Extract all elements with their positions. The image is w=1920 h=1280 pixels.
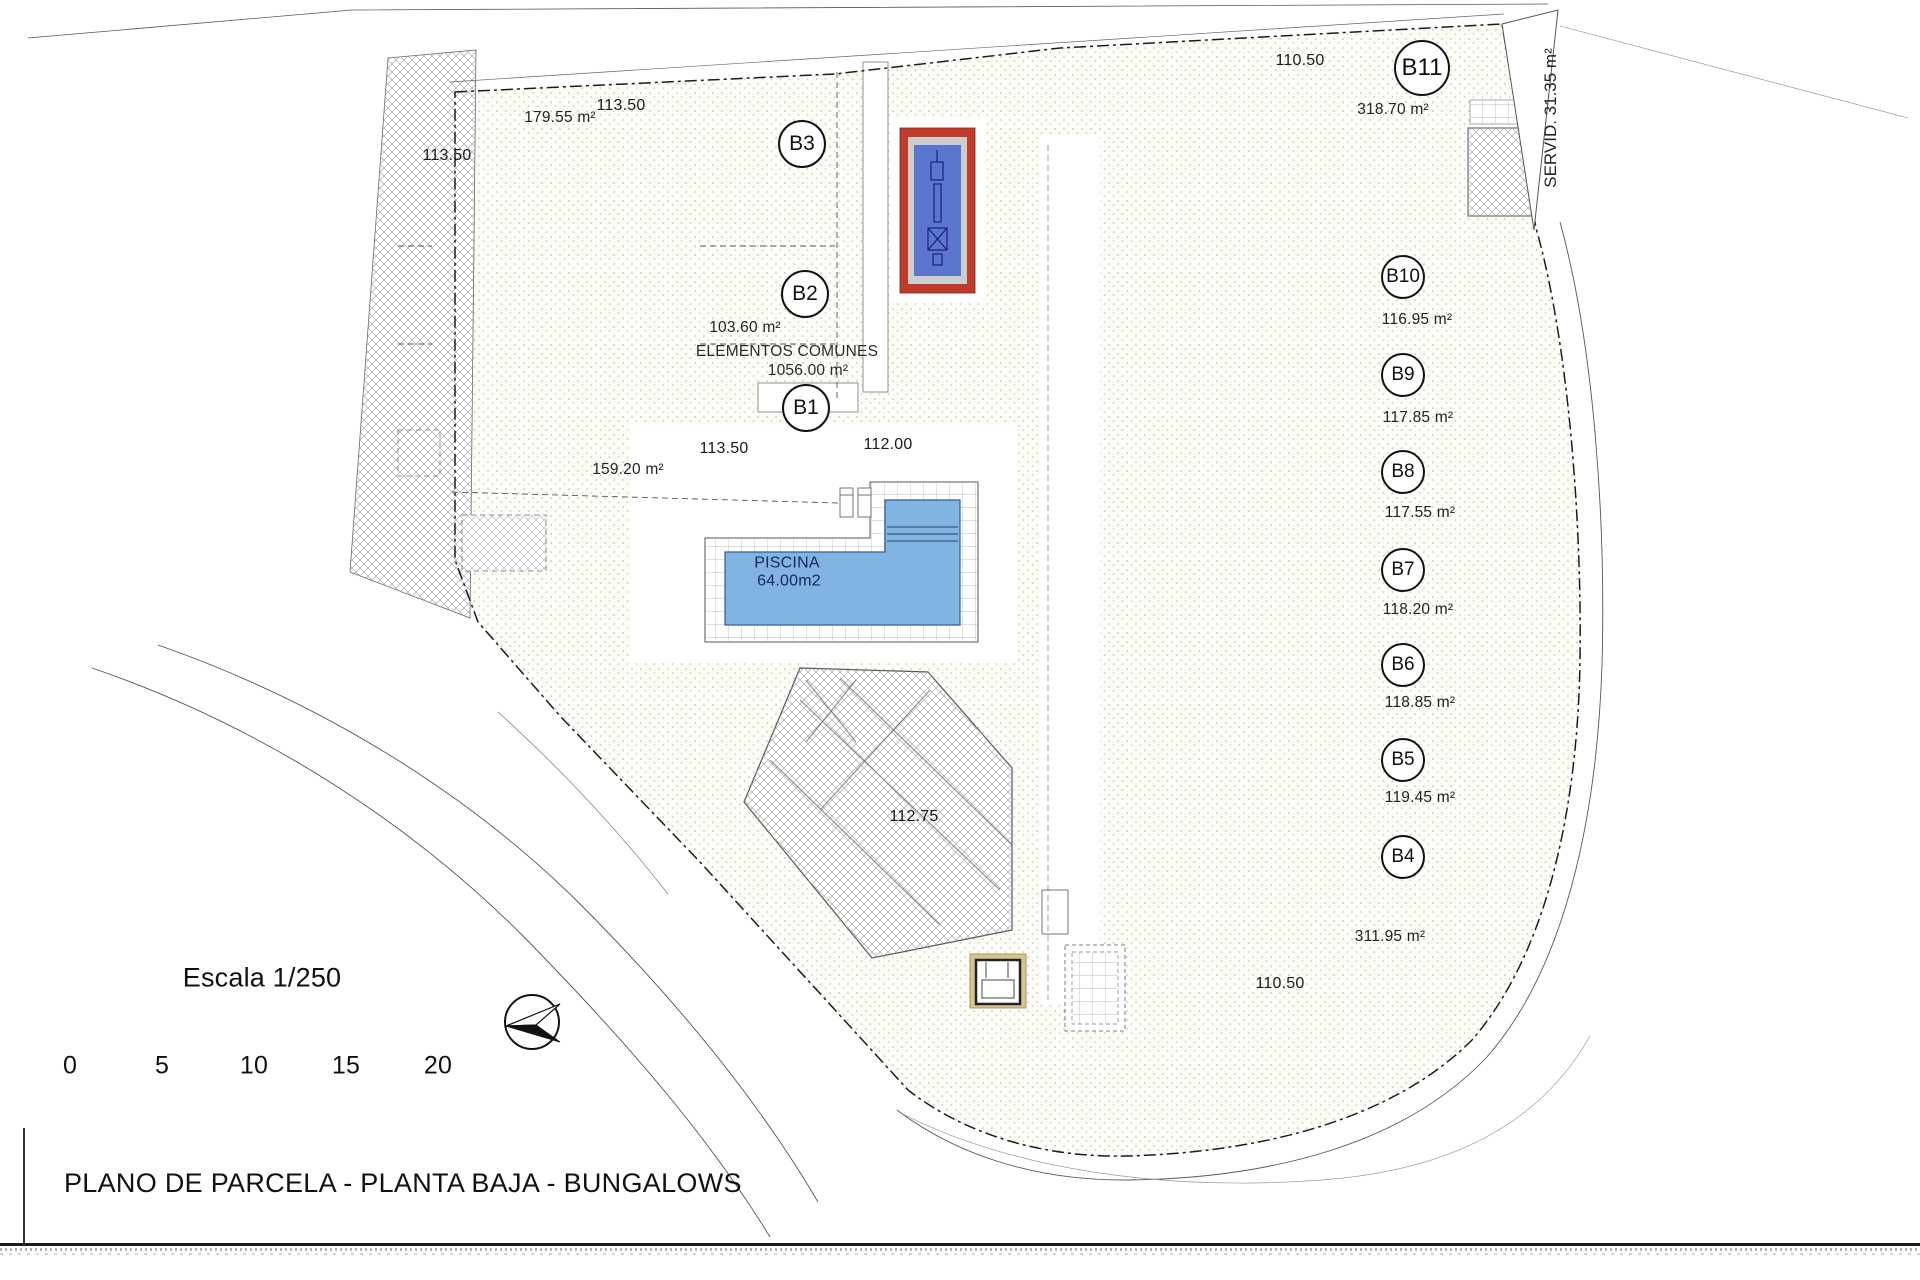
area-b7: 118.20 m²	[1383, 601, 1453, 619]
unit-label-b10: B10	[1381, 255, 1425, 299]
unit-label-b9: B9	[1381, 353, 1425, 397]
cropped-text-strip	[0, 1247, 1920, 1259]
unit-label-b7: B7	[1381, 548, 1425, 592]
area-b3: 179.55 m²	[524, 109, 596, 127]
area-b2: 103.60 m²	[709, 319, 781, 337]
level-110-50-bottom: 110.50	[1256, 975, 1305, 993]
unit-label-b2: B2	[781, 270, 829, 318]
level-112-00: 112.00	[864, 436, 913, 454]
unit-label-b1: B1	[782, 384, 830, 432]
small-stair	[1042, 890, 1068, 934]
area-b8: 117.55 m²	[1385, 504, 1455, 522]
area-b5: 119.45 m²	[1385, 789, 1455, 807]
sheet-frame-bottom	[0, 1243, 1920, 1246]
unit-label-b6: B6	[1381, 643, 1425, 687]
level-113-50-bottom: 113.50	[700, 440, 749, 458]
area-b4: 311.95 m²	[1355, 928, 1425, 946]
pool-area: 64.00m2	[757, 571, 821, 590]
area-b6: 118.85 m²	[1385, 694, 1455, 712]
scale-tick-20: 20	[424, 1052, 452, 1081]
scale-tick-10: 10	[240, 1052, 268, 1081]
area-b9: 117.85 m²	[1383, 409, 1453, 427]
unit-label-b8: B8	[1381, 450, 1425, 494]
area-b11: 318.70 m²	[1357, 101, 1429, 119]
common-elements-area: 1056.00 m²	[768, 362, 848, 380]
sheet-title: PLANO DE PARCELA - PLANTA BAJA - BUNGALO…	[64, 1168, 742, 1199]
unit-label-b4: B4	[1381, 835, 1425, 879]
scale-tick-15: 15	[332, 1052, 360, 1081]
level-113-50-west: 113.50	[423, 147, 472, 165]
petanque-court	[900, 128, 975, 293]
scale-tick-5: 5	[155, 1052, 169, 1081]
pool-label: PISCINA	[754, 553, 819, 572]
level-110-50-top: 110.50	[1276, 52, 1325, 70]
unit-label-b11: B11	[1394, 40, 1450, 96]
unit-label-b5: B5	[1381, 738, 1425, 782]
scale-title: Escala 1/250	[183, 963, 342, 994]
sheet-frame-left	[23, 1128, 25, 1244]
plan-sheet: B1 B2 B3 B4 B5 B6 B7 B8 B9 B10 B11 159.2…	[0, 0, 1920, 1280]
north-arrow-icon	[505, 995, 560, 1049]
scale-tick-0: 0	[63, 1052, 77, 1081]
servitude-label: SERVID. 31.35 m²	[1541, 48, 1561, 188]
area-b1: 159.20 m²	[592, 461, 664, 479]
common-elements-label: ELEMENTOS COMUNES	[696, 343, 878, 361]
site-plan-drawing	[0, 0, 1920, 1280]
level-113-50-top: 113.50	[597, 97, 646, 115]
level-112-75: 112.75	[890, 808, 939, 826]
unit-label-b3: B3	[778, 120, 826, 168]
area-b10: 116.95 m²	[1382, 311, 1452, 329]
